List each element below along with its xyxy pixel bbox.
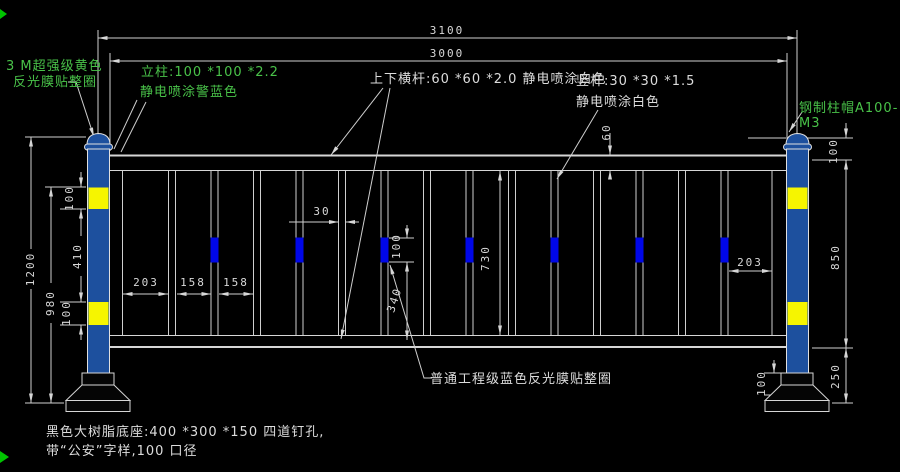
right-post-body: [787, 149, 809, 373]
dim-total-height: 1200: [24, 249, 38, 289]
dim-span-inner: 3000: [425, 47, 469, 61]
dim-rail-height: 60: [600, 112, 614, 152]
left-post-yellow-band-bottom: [89, 302, 109, 325]
edge-mark-top: [0, 9, 7, 19]
dim-end-gap-right: 203: [728, 256, 772, 270]
note-blue-film: 普通工程级蓝色反光膜贴整圈: [430, 368, 612, 387]
note-base-spec-line1: 黑色大树脂底座:400 *300 *150 四道钉孔,: [46, 421, 324, 440]
dim-band-bottom: 100: [60, 293, 74, 333]
dim-bar-gap-1: 158: [171, 276, 215, 290]
left-post-body: [88, 149, 110, 373]
note-yellow-film-line2: 反光膜贴整圈: [13, 71, 97, 90]
dim-base-collar: 100: [755, 363, 769, 403]
note-bar-spec-line1: 竖杆:30 *30 *1.5: [576, 70, 695, 89]
dim-clear-height: 730: [479, 238, 493, 278]
note-bar-spec-line2: 静电喷涂白色: [576, 91, 660, 110]
right-post-yellow-band-bottom: [788, 302, 808, 325]
note-rail-spec: 上下横杆:60 *60 *2.0 静电喷涂白色: [370, 68, 607, 87]
note-base-spec-line2: 带“公安”字样,100 口径: [46, 440, 198, 459]
dim-post-height: 980: [44, 283, 58, 323]
dim-bar-width: 30: [300, 205, 344, 219]
edge-mark-bottom: [0, 451, 9, 463]
dim-span-outer: 3100: [425, 24, 469, 38]
fence-bars: [123, 171, 773, 335]
dim-patch-height: 100: [390, 226, 404, 266]
dim-bar-gap-2: 158: [214, 276, 258, 290]
note-cap-spec: 钢制柱帽A100- M3: [799, 97, 900, 131]
left-base: [66, 373, 130, 412]
cad-drawing-canvas: 3100 3000 60 100 850 250 100 1200 980 10…: [0, 0, 900, 472]
left-post: [85, 134, 113, 374]
dim-bottom-clearance: 250: [829, 356, 843, 396]
reflective-patches: [211, 238, 729, 263]
note-post-spec-line1: 立柱:100 *100 *2.2: [141, 61, 279, 80]
right-post-yellow-band-top: [788, 188, 808, 210]
dim-cap-to-rail: 100: [827, 131, 841, 171]
note-post-spec-line2: 静电喷涂警蓝色: [140, 81, 238, 100]
right-base: [765, 373, 829, 412]
dim-end-gap-left: 203: [124, 276, 168, 290]
dim-fence-height: 850: [829, 237, 843, 277]
edge-marks: [0, 9, 9, 463]
right-post: [784, 134, 812, 374]
leader-lines: [68, 82, 802, 378]
dim-band-top: 100: [63, 178, 77, 218]
left-post-yellow-band-top: [89, 188, 109, 210]
dim-band-gap: 410: [71, 236, 85, 276]
